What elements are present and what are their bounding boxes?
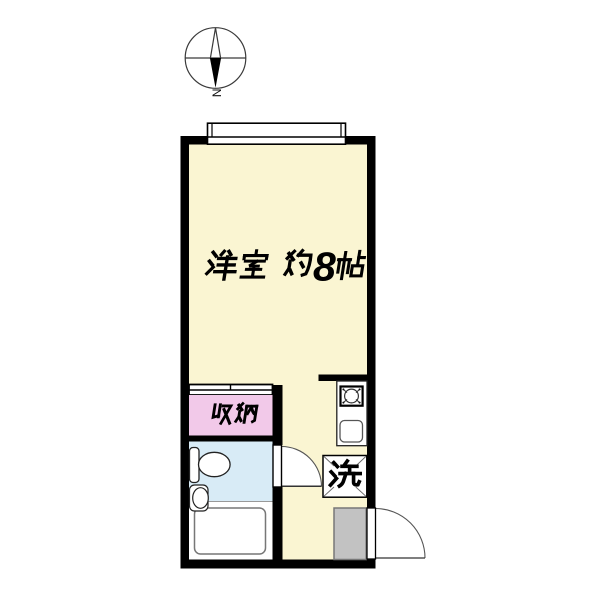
svg-text:N: N bbox=[210, 89, 224, 98]
svg-text:8: 8 bbox=[313, 244, 336, 290]
